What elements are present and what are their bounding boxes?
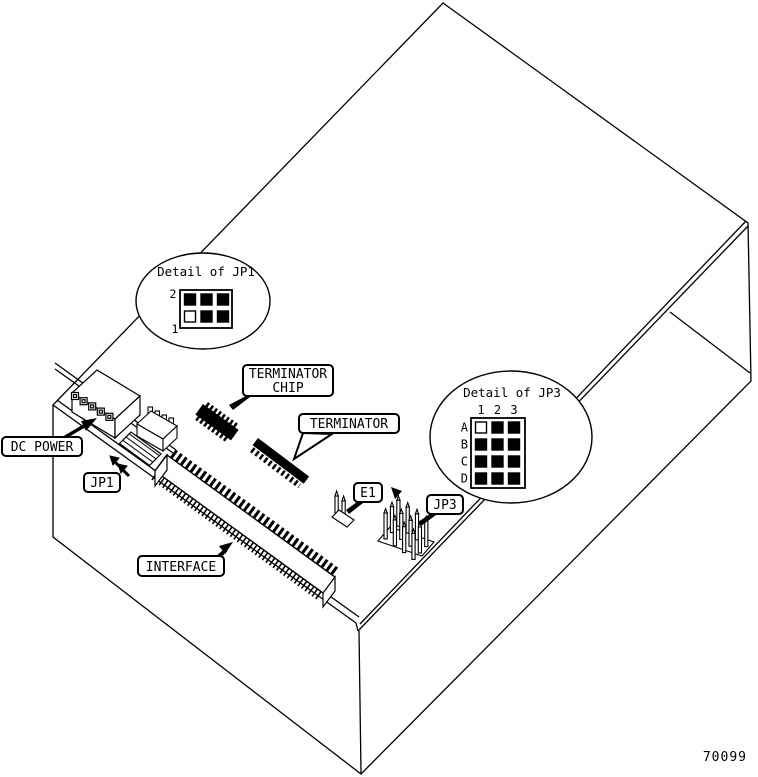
detail-jp3-rowB: B — [461, 438, 468, 452]
detail-jp1-title: Detail of JP1 — [157, 264, 255, 279]
detail-bubble-jp3: Detail of JP3 1 2 3 A B C D — [430, 371, 592, 503]
e1-pointer-icon — [346, 502, 363, 514]
e1-pin-tip — [335, 491, 338, 496]
interface-label: INTERFACE — [146, 560, 216, 575]
interface-connector — [152, 451, 338, 607]
terminator-label: TERMINATOR — [310, 417, 388, 432]
e1-label: E1 — [360, 486, 376, 501]
detail-jp3-rowC: C — [461, 455, 468, 469]
jp1-label: JP1 — [90, 476, 113, 491]
jumper-cell-filled — [492, 473, 503, 484]
callout-terminator-chip: TERMINATOR CHIP — [229, 365, 333, 410]
terminator-chip-label-line2: CHIP — [272, 381, 303, 396]
e1-pin-tip — [342, 496, 345, 501]
jumper-cell-filled — [218, 311, 229, 322]
drive-board-diagram: Detail of JP1 2 1 Detail of JP3 1 2 3 A … — [0, 0, 758, 777]
diagram-page: Detail of JP1 2 1 Detail of JP3 1 2 3 A … — [0, 0, 758, 777]
dc-power-label: DC POWER — [11, 440, 74, 455]
callout-e1: E1 — [346, 483, 382, 514]
terminator-pointer-icon — [294, 433, 332, 459]
callout-terminator: TERMINATOR — [294, 414, 399, 459]
jumper-cell-filled — [218, 294, 229, 305]
terminator-chip-label-line1: TERMINATOR — [249, 367, 327, 382]
figure-number: 70099 — [703, 750, 747, 765]
jumper-cell-filled — [185, 294, 196, 305]
callout-jp3: JP3 — [418, 495, 463, 526]
jumper-cell-filled — [476, 473, 487, 484]
callout-dc-power: DC POWER — [2, 418, 97, 456]
jumper-cell-open — [185, 311, 196, 322]
detail-jp3-col1: 1 — [477, 403, 484, 417]
jumper-cell-filled — [476, 456, 487, 467]
detail-jp3-col3: 3 — [510, 403, 517, 417]
rim-corner-edge — [356, 623, 358, 631]
callout-interface: INTERFACE — [138, 542, 233, 576]
detail-jp3-rowD: D — [461, 472, 468, 486]
detail-jp3-title: Detail of JP3 — [463, 385, 561, 400]
jumper-cell-filled — [492, 439, 503, 450]
detail-jp3-rowA: A — [461, 421, 469, 435]
jumper-cell-open — [476, 422, 487, 433]
jumper-cell-filled — [509, 439, 520, 450]
jumper-cell-filled — [201, 311, 212, 322]
detail-jp1-row2-label: 2 — [170, 287, 177, 301]
interface-pin-row-back — [173, 453, 336, 572]
jumper-cell-filled — [492, 456, 503, 467]
jumper-cell-filled — [201, 294, 212, 305]
chassis-outline — [53, 3, 751, 774]
chassis-box — [53, 3, 751, 774]
jp3-jumper-block — [378, 487, 434, 559]
jp3-label: JP3 — [433, 498, 456, 513]
detail-bubble-jp1: Detail of JP1 2 1 — [136, 253, 270, 349]
front-corner-vertical — [359, 631, 361, 773]
jumper-cell-filled — [509, 422, 520, 433]
detail-jp1-row1-label: 1 — [172, 322, 179, 336]
detail-jp3-col2: 2 — [494, 403, 501, 417]
jumper-cell-filled — [509, 473, 520, 484]
jp3-pin1-marker-icon — [391, 487, 402, 499]
jumper-cell-filled — [476, 439, 487, 450]
inner-wall-right — [670, 312, 750, 373]
callout-jp1: JP1 — [84, 473, 120, 492]
jumper-cell-filled — [492, 422, 503, 433]
jumper-cell-filled — [509, 456, 520, 467]
